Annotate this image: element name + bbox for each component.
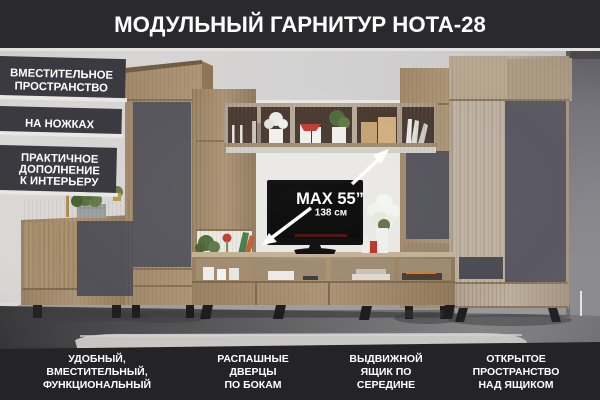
svg-text:УДОБНЫЙ,: УДОБНЫЙ, [68, 352, 126, 365]
svg-text:ДВЕРЦЫ: ДВЕРЦЫ [229, 366, 276, 378]
svg-text:ПО БОКАМ: ПО БОКАМ [224, 379, 281, 391]
svg-text:НАД ЯЩИКОМ: НАД ЯЩИКОМ [478, 379, 553, 391]
svg-text:ПРОСТРАНСТВО: ПРОСТРАНСТВО [473, 366, 560, 378]
svg-text:СЕРЕДИНЕ: СЕРЕДИНЕ [357, 379, 415, 391]
svg-text:РАСПАШНЫЕ: РАСПАШНЫЕ [217, 353, 289, 365]
svg-text:НА НОЖКАХ: НА НОЖКАХ [25, 118, 95, 132]
svg-text:ЯЩИК ПО: ЯЩИК ПО [361, 366, 412, 378]
svg-text:К ИНТЕРЬЕРУ: К ИНТЕРЬЕРУ [20, 175, 100, 189]
svg-text:ОТКРЫТОЕ: ОТКРЫТОЕ [486, 353, 546, 365]
svg-text:ВМЕСТИТЕЛЬНЫЙ,: ВМЕСТИТЕЛЬНЫЙ, [46, 365, 147, 378]
svg-text:ВМЕСТИТЕЛЬНОЕ: ВМЕСТИТЕЛЬНОЕ [10, 67, 114, 82]
svg-text:ВЫДВИЖНОЙ: ВЫДВИЖНОЙ [349, 352, 422, 365]
svg-text:МОДУЛЬНЫЙ ГАРНИТУР НОТА-28: МОДУЛЬНЫЙ ГАРНИТУР НОТА-28 [114, 12, 486, 37]
svg-text:ФУНКЦИОНАЛЬНЫЙ: ФУНКЦИОНАЛЬНЫЙ [43, 378, 151, 391]
svg-text:ПРОСТРАНСТВО: ПРОСТРАНСТВО [14, 80, 108, 94]
